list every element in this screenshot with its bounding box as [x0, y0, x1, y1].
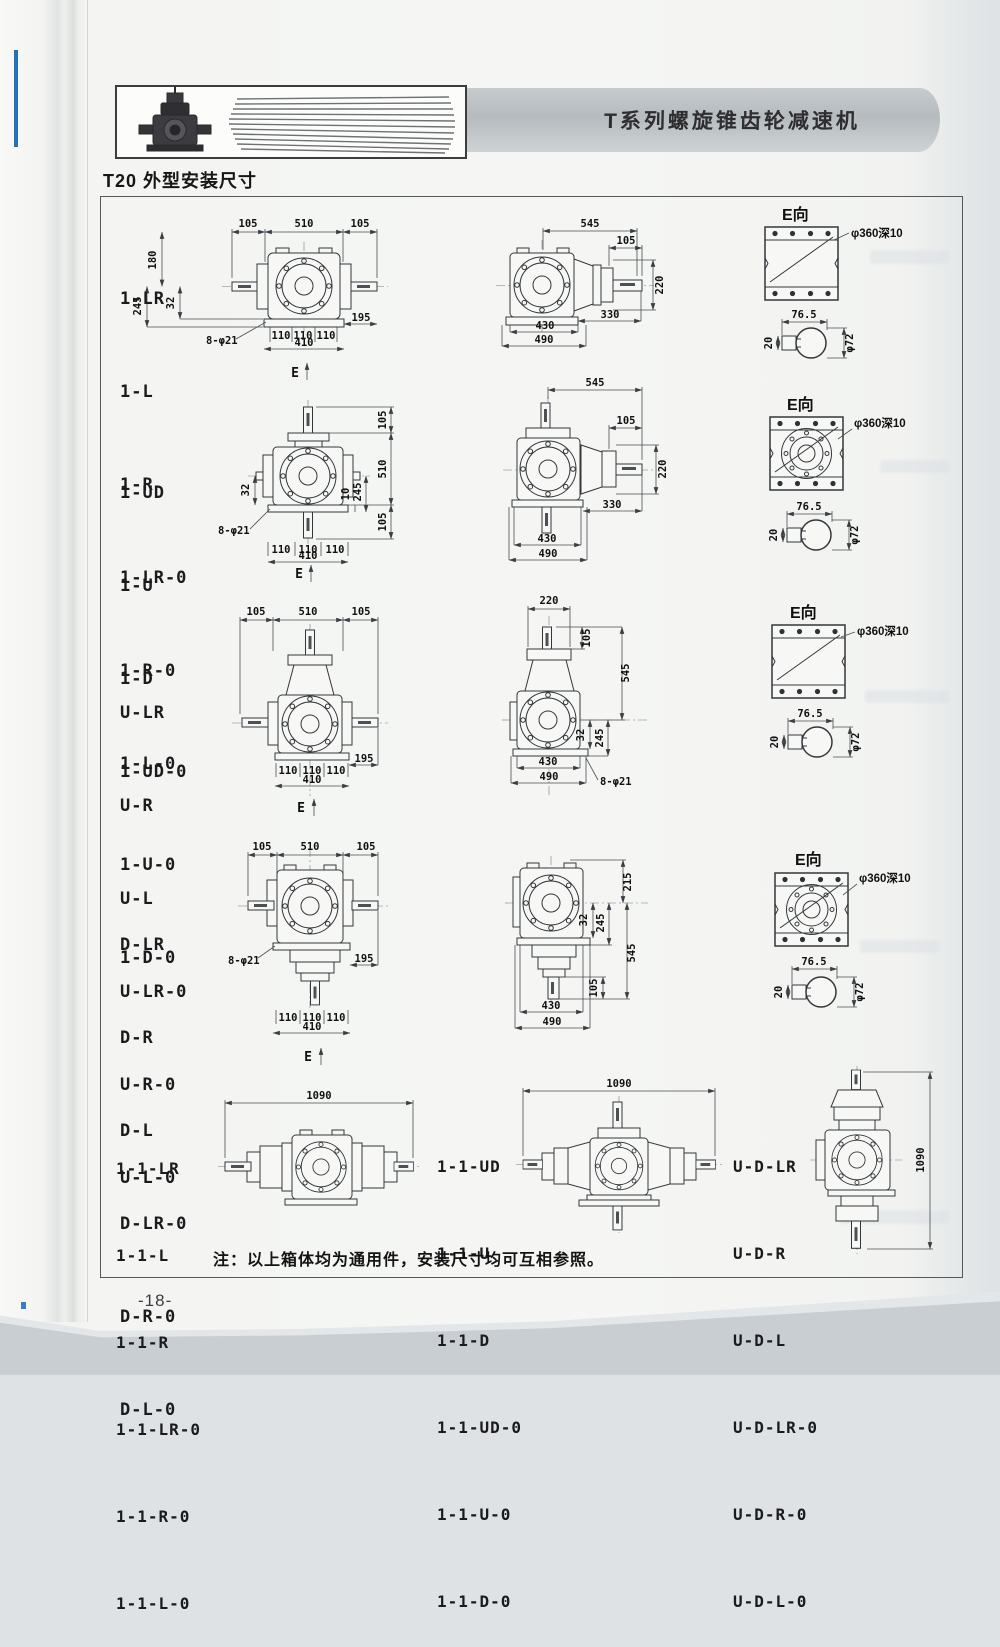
list-item: 1-1-L — [116, 1241, 201, 1270]
dim-label: 110 — [326, 544, 345, 556]
bottom-drawing-1: 1090 — [218, 1090, 422, 1205]
dim-label: 410 — [295, 337, 314, 349]
dim-label: 76.5 — [801, 956, 826, 968]
list-item: 1-1-UD-0 — [437, 1413, 522, 1442]
dim-label: 510 — [301, 841, 320, 853]
list-item: 1-1-D-0 — [437, 1587, 522, 1616]
dim-label: 510 — [377, 460, 389, 479]
holes-callout: 8-φ21 — [206, 335, 238, 347]
model-list-bottom-3: U-D-LR U-D-R U-D-L U-D-LR-0 U-D-R-0 U-D-… — [733, 1094, 818, 1645]
list-item: 1-1-R-0 — [116, 1502, 201, 1531]
list-item: 1-LR — [120, 284, 187, 315]
thread-callout: φ360深10 — [857, 624, 909, 638]
dim-label: 1090 — [915, 1147, 927, 1172]
dim-label: 490 — [539, 548, 558, 560]
blue-edge-dot — [21, 1302, 26, 1309]
dim-label: 245 — [594, 729, 606, 748]
dim-label: 105 — [617, 415, 636, 427]
view-direction-label: E — [304, 1050, 312, 1065]
dim-label: 330 — [603, 499, 622, 511]
row1-e-view: E向 φ360深10 76.5 20 φ72 — [763, 205, 903, 358]
row1-side-view: 545 105 220 330 430 490 — [496, 218, 666, 346]
dim-label: 410 — [303, 1021, 322, 1033]
row4-e-view: E向 φ360深10 76.5 20 φ72 — [773, 850, 911, 1007]
dim-label: 10 — [340, 488, 352, 501]
dim-label: 105 — [351, 218, 370, 230]
list-item: U-D-R-0 — [733, 1500, 818, 1529]
dim-label: 32 — [575, 729, 587, 742]
list-item: 1-1-D — [437, 1326, 522, 1355]
list-item: 1-1-LR-0 — [116, 1415, 201, 1444]
list-item: U-D-R — [733, 1239, 818, 1268]
e-view-title: E向 — [782, 205, 809, 224]
dim-label: 545 — [586, 377, 605, 389]
dim-label: 110 — [279, 765, 298, 777]
dim-label: 105 — [377, 411, 389, 430]
view-direction-label: E — [291, 366, 299, 381]
dim-label: 1090 — [306, 1090, 331, 1102]
page-title: T系列螺旋锥齿轮减速机 — [542, 105, 923, 135]
dim-label: 20 — [773, 986, 785, 999]
list-item: 1-L — [120, 377, 187, 408]
list-item: D-R — [120, 1023, 187, 1054]
dim-label: φ72 — [844, 334, 856, 353]
dim-label: 430 — [538, 533, 557, 545]
model-list-bottom-2: 1-1-UD 1-1-U 1-1-D 1-1-UD-0 1-1-U-0 1-1-… — [437, 1094, 522, 1645]
list-item: 1-1-L-0 — [116, 1589, 201, 1618]
page-number: -18- — [138, 1291, 172, 1311]
dim-label: 410 — [299, 550, 318, 562]
dim-label: 105 — [247, 606, 266, 618]
row3-e-view: E向 φ360深10 76.5 20 φ72 — [769, 603, 909, 757]
dim-label: 410 — [303, 774, 322, 786]
list-item: U-LR — [120, 698, 187, 729]
section-title: T20 外型安装尺寸 — [103, 167, 257, 193]
dim-label: 220 — [654, 276, 666, 295]
dim-label: 105 — [581, 629, 593, 648]
dim-label: 110 — [327, 1012, 346, 1024]
dim-label: 330 — [601, 309, 620, 321]
dim-label: 105 — [617, 235, 636, 247]
dim-label: 105 — [352, 606, 371, 618]
row4-side-view: 215 32 245 545 105 430 490 — [505, 856, 648, 1028]
dim-label: 32 — [578, 914, 590, 927]
dim-label: 545 — [581, 218, 600, 230]
row3-side-view: 220 105 545 32 245 430 490 8-φ21 — [502, 595, 648, 796]
dim-label: 105 — [253, 841, 272, 853]
list-item: 1-1-U-0 — [437, 1500, 522, 1529]
thread-callout: φ360深10 — [859, 871, 911, 885]
dim-label: 76.5 — [796, 501, 821, 513]
dim-label: 110 — [272, 330, 291, 342]
list-item: U-D-LR — [733, 1152, 818, 1181]
dim-label: 20 — [763, 337, 775, 350]
technical-drawings: 105 510 105 180 245 32 195 110 110 110 4… — [100, 196, 963, 1278]
dim-label: 545 — [626, 944, 638, 963]
list-item: U-D-L — [733, 1326, 818, 1355]
dim-label: 195 — [355, 953, 374, 965]
list-item: U-R — [120, 791, 187, 822]
dim-label: 220 — [540, 595, 559, 607]
row3-front-view: 105 510 105 195 110 110 110 410 E — [232, 606, 388, 816]
dim-label: 20 — [769, 736, 781, 749]
list-item: 1-1-LR — [116, 1154, 201, 1183]
view-direction-label: E — [297, 801, 305, 816]
dim-label: 110 — [279, 1012, 298, 1024]
dim-label: 76.5 — [791, 309, 816, 321]
thread-callout: φ360深10 — [851, 226, 903, 240]
e-view-title: E向 — [787, 395, 814, 414]
dim-label: 490 — [535, 334, 554, 346]
dim-label: 430 — [539, 756, 558, 768]
row2-front-view: 105 510 105 245 10 32 8-φ21 110 110 110 … — [218, 400, 394, 582]
bottom-drawing-2: 1090 — [516, 1078, 722, 1233]
view-direction-label: E — [295, 567, 303, 582]
dim-label: 105 — [357, 841, 376, 853]
holes-callout: 8-φ21 — [218, 525, 250, 537]
logo-box — [115, 85, 467, 159]
row2-side-view: 545 105 220 330 430 490 — [503, 377, 669, 560]
dim-label: 110 — [272, 544, 291, 556]
dim-label: 20 — [768, 529, 780, 542]
dim-label: 110 — [317, 330, 336, 342]
dim-label: φ72 — [849, 526, 861, 545]
dim-label: 245 — [352, 483, 364, 502]
header-banner: T系列螺旋锥齿轮减速机 — [391, 88, 940, 152]
holes-callout: 8-φ21 — [600, 776, 632, 788]
row4-front-view: 105 510 105 8-φ21 195 110 110 110 410 E — [228, 841, 388, 1065]
list-item: 1-UD — [120, 478, 187, 509]
dim-label: 220 — [657, 460, 669, 479]
dim-label: 195 — [355, 753, 374, 765]
dim-label: 76.5 — [797, 708, 822, 720]
e-view-title: E向 — [795, 850, 822, 869]
dim-label: φ72 — [850, 733, 862, 752]
dim-label: 105 — [239, 218, 258, 230]
list-item: 1-1-UD — [437, 1152, 522, 1181]
gearbox-logo-icon — [117, 87, 465, 157]
row2-e-view: E向 φ360深10 76.5 20 φ72 — [768, 395, 906, 550]
dim-label: 490 — [540, 771, 559, 783]
model-list-bottom-1: 1-1-LR 1-1-L 1-1-R 1-1-LR-0 1-1-R-0 1-1-… — [116, 1096, 201, 1647]
dim-label: 1090 — [606, 1078, 631, 1090]
dim-label: 545 — [620, 664, 632, 683]
list-item: U-D-LR-0 — [733, 1413, 818, 1442]
dim-label: 245 — [595, 914, 607, 933]
bottom-drawing-3: 1090 — [810, 1066, 933, 1254]
holes-callout: 8-φ21 — [228, 955, 260, 967]
dim-label: 430 — [536, 320, 555, 332]
list-item: U-D-L-0 — [733, 1587, 818, 1616]
dim-label: 510 — [299, 606, 318, 618]
book-page-stack-edge — [0, 0, 88, 1322]
dim-label: 215 — [622, 873, 634, 892]
list-item: 1-U — [120, 571, 187, 602]
e-view-title: E向 — [790, 603, 817, 622]
blue-edge-mark — [14, 50, 18, 147]
dim-label: 32 — [240, 484, 252, 497]
list-item: 1-1-R — [116, 1328, 201, 1357]
dim-label: φ72 — [854, 983, 866, 1002]
dim-label: 430 — [542, 1000, 561, 1012]
dim-label: 195 — [352, 312, 371, 324]
list-item: D-LR — [120, 930, 187, 961]
footnote: 注：以上箱体均为通用件，安装尺寸均可互相参照。 — [213, 1246, 604, 1270]
dim-label: 105 — [377, 513, 389, 532]
dim-label: 110 — [327, 765, 346, 777]
dim-label: 510 — [295, 218, 314, 230]
thread-callout: φ360深10 — [854, 416, 906, 430]
dim-label: 490 — [543, 1016, 562, 1028]
